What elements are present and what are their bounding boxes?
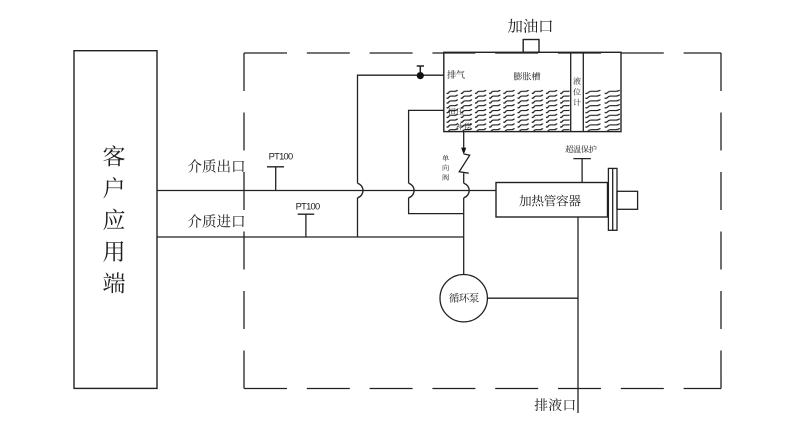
svg-text:PT100: PT100 xyxy=(269,151,293,161)
svg-text:PT100: PT100 xyxy=(296,201,320,211)
